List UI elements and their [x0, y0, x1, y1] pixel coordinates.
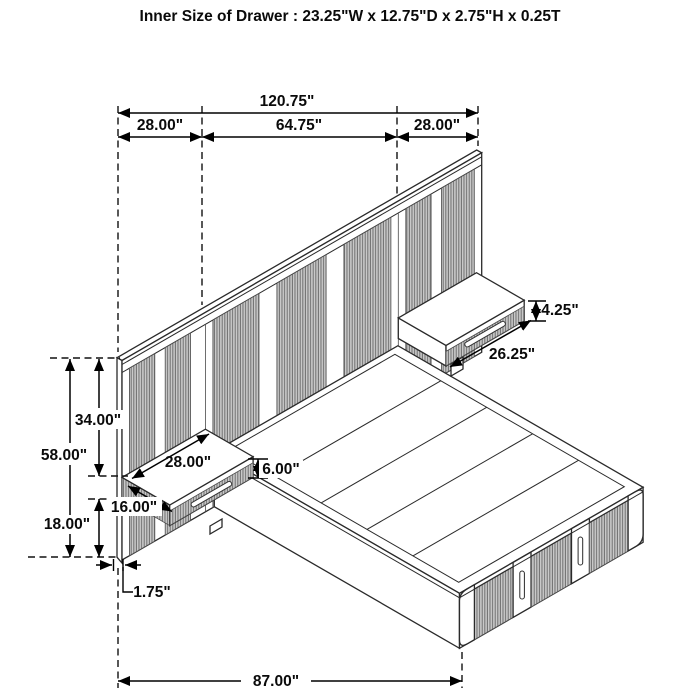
foot-drawer-pull-slot: [578, 537, 583, 565]
dim-headboard-thickness: 1.75": [96, 559, 171, 601]
dim-label: 64.75": [276, 117, 322, 134]
dim-label: 26.25": [489, 346, 535, 363]
bed-dimension-diagram: 120.75" 28.00" 64.75" 28.00" 4.25" 26.25…: [0, 0, 700, 700]
dim-overall-width: 120.75": [118, 93, 478, 113]
dim-label: 16.00": [111, 499, 157, 516]
dim-label: 120.75": [260, 93, 315, 110]
slat-panel: [129, 354, 154, 556]
drawer-inner-size-title: Inner Size of Drawer : 23.25"W x 12.75"D…: [140, 8, 561, 25]
dim-label: 28.00": [137, 117, 183, 134]
dim-label: 28.00": [165, 454, 211, 471]
headboard-left-edge-face: [117, 358, 122, 563]
dim-left-section: 28.00": [118, 117, 202, 137]
dim-label: 87.00": [253, 673, 299, 690]
dim-label: 1.75": [133, 584, 171, 601]
dim-middle-section: 64.75": [202, 117, 397, 137]
dim-label: 58.00": [41, 447, 87, 464]
dim-label: 34.00": [75, 412, 121, 429]
foot-drawer-pull-slot: [520, 571, 525, 599]
diagram-canvas: 120.75" 28.00" 64.75" 28.00" 4.25" 26.25…: [0, 0, 700, 700]
dim-label: 28.00": [414, 117, 460, 134]
dim-label: 4.25": [541, 302, 579, 319]
dim-right-nightstand-height: 4.25": [528, 301, 579, 321]
dim-right-section: 28.00": [397, 117, 478, 137]
dim-label: 6.00": [262, 461, 300, 478]
dim-bed-length: 87.00": [118, 673, 462, 690]
nightstand-bracket: [210, 519, 222, 534]
dim-label: 18.00": [44, 516, 90, 533]
